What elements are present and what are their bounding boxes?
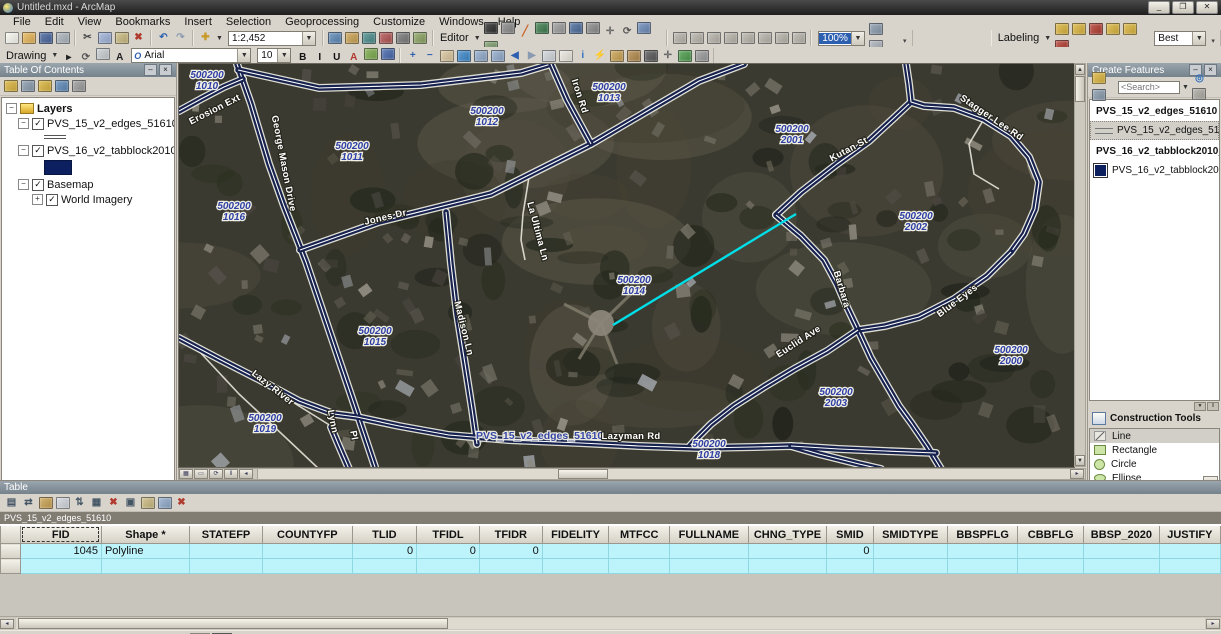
construction-tool-rectangle[interactable]: Rectangle [1090,443,1219,457]
refresh-view-button[interactable]: ⟳ [209,469,223,479]
search-dropdown-icon[interactable]: ▼ [1180,84,1191,91]
cell-1-fidelity[interactable] [542,559,609,574]
edit-annotation-icon[interactable] [500,20,517,35]
table-title: Table [4,482,28,493]
templates-filter-icon[interactable] [1090,71,1107,86]
paste-icon[interactable] [113,31,130,46]
cell-0-mtfcc[interactable] [609,544,670,559]
split-icon[interactable]: ✛ [602,24,619,39]
error-inspector-icon [758,32,772,44]
cell-1-justify[interactable] [1159,559,1220,574]
forward-extent-icon: ▶ [528,50,536,62]
cell-1-tfidr[interactable] [479,559,542,574]
collapse-icon[interactable]: − [6,103,17,114]
new-document-icon[interactable] [3,31,20,46]
find-icon [644,50,658,62]
label-weight-icon[interactable] [1087,22,1104,37]
column-header-fidelity[interactable]: FIDELITY [542,525,609,544]
column-header-smidtype[interactable]: SMIDTYPE [873,525,947,544]
templates-filter-icon [1092,72,1106,84]
delete-icon: ✖ [134,32,142,44]
edges-layer-map-label: PVS_15_v2_edges_51610 [476,430,603,442]
map-canvas[interactable]: PVS_15_v2_edges_51610Erosion ExtGeorge M… [178,63,1075,468]
cut-icon[interactable]: ✂ [79,31,96,46]
toc-tabblock-layer[interactable]: − ✓ PVS_16_v2_tabblock2010_51610 [6,143,174,158]
clear-search-icon [1192,88,1206,100]
vscroll-thumb[interactable] [1075,76,1085,102]
fixed-zoom-out-icon [491,50,505,62]
full-extent-icon [457,50,471,62]
block-label-1018: 1018 [698,450,721,461]
labeling-menu-caret[interactable]: ▼ [1042,35,1053,42]
map-horizontal-scrollbar[interactable] [257,469,1070,479]
clear-selection-icon [559,50,573,62]
attribute-grid[interactable]: FIDShape *STATEFPCOUNTYFPTLIDTFIDLTFIDRF… [0,524,1221,616]
create-features-panel: Create Features –× ▼ ◎ PVS_15_v2_edges_5… [1087,63,1221,480]
rectangle-tool-icon [1094,445,1106,455]
label-placement-dropdown-icon[interactable]: ▼ [1192,32,1205,45]
cell-1-smidtype[interactable] [873,559,947,574]
cell-0-smidtype[interactable] [873,544,947,559]
html-popup-icon[interactable] [608,48,625,63]
column-header-smid[interactable]: SMID [827,525,873,544]
label-priority-icon[interactable] [1070,22,1087,37]
add-data-caret[interactable]: ▼ [214,35,225,42]
street-label: Lazyman Rd [602,431,661,442]
column-header-mtfcc[interactable]: MTFCC [609,525,670,544]
print-icon[interactable] [54,31,71,46]
toc-options-icon [72,80,86,92]
rotate-tool-icon: ⟳ [623,26,631,38]
label-priority-icon [1072,23,1086,35]
related-tables-icon[interactable]: ⇄ [20,495,37,510]
table-options-icon[interactable]: ▤ [3,495,20,510]
column-header-statefp[interactable]: STATEFP [189,525,262,544]
column-header-shape-[interactable]: Shape * [101,525,189,544]
error-inspector-icon[interactable] [756,31,773,46]
fill-color-icon[interactable] [362,46,379,61]
scroll-up-icon[interactable]: ▲ [1075,64,1085,75]
scroll-down-icon[interactable]: ▼ [1075,455,1085,466]
zoom-box-icon [96,48,110,60]
back-extent-icon[interactable]: ◀ [506,48,523,63]
menu-item-selection[interactable]: Selection [219,16,278,28]
cell-0-justify[interactable] [1159,544,1220,559]
map-vertical-scrollbar[interactable]: ▲ ▼ [1074,63,1086,467]
straight-segment-icon[interactable]: ╱ [517,24,534,39]
paste-rows-icon [141,497,155,509]
rotate-element-icon: ⟳ [82,52,90,64]
clear-selection-icon[interactable] [557,48,574,63]
tabblock-layer-label: PVS_16_v2_tabblock2010_51610 [47,145,175,157]
minimize-button[interactable]: _ [1148,1,1170,14]
edit-vertices-icon[interactable] [568,20,585,35]
block-label-1013: 1013 [598,93,621,104]
block-label-1016: 1016 [223,212,246,223]
font-dropdown-icon[interactable]: ▼ [237,49,250,62]
column-header-countyfp[interactable]: COUNTYFP [263,525,353,544]
select-features-icon[interactable] [540,48,557,63]
polygon-template-icon [1094,164,1107,177]
menu-item-customize[interactable]: Customize [366,16,432,28]
cell-0-shape-[interactable]: Polyline [101,544,189,559]
column-header-tfidr[interactable]: TFIDR [479,525,542,544]
copy-icon[interactable] [96,31,113,46]
block-label-2003: 2003 [824,398,848,409]
toc-layers-node[interactable]: − Layers [6,101,174,116]
list-by-visibility-icon[interactable] [36,79,53,94]
basemap-checkbox[interactable]: ✓ [32,179,44,191]
zoom-percent-dropdown-icon[interactable]: ▼ [851,32,864,45]
editor-menu[interactable]: Editor [437,32,472,44]
table-layer-name: PVS_15_v2_edges_51610 [0,512,1221,524]
cell-1-bbspflg[interactable] [947,559,1017,574]
map-topology-icon [673,32,687,44]
add-data-icon[interactable]: ✚ [197,31,214,46]
menu-item-geoprocessing[interactable]: Geoprocessing [278,16,366,28]
select-elements-icon: ▸ [66,52,71,64]
zoom-to-selected-icon[interactable] [156,495,173,510]
organize-templates-icon[interactable] [1090,87,1107,102]
modify-edge-icon[interactable] [705,31,722,46]
cell-0-countyfp[interactable] [263,544,353,559]
go-to-xy-icon: ✛ [664,50,672,62]
fill-color-icon [364,48,378,60]
forward-extent-icon[interactable]: ▶ [523,48,540,63]
view-unplaced-icon [1106,23,1120,35]
cell-0-tfidr[interactable]: 0 [479,544,542,559]
toolbar-overflow-icon[interactable]: ▾ [901,31,909,45]
menu-item-edit[interactable]: Edit [38,16,71,28]
python-window-icon [396,32,410,44]
pan-icon [440,50,454,62]
list-by-visibility-icon [38,80,52,92]
column-header-chng-type[interactable]: CHNG_TYPE [748,525,827,544]
arcmap-app-icon [3,3,13,13]
table-scroll-right-icon[interactable]: ▸ [1206,619,1220,629]
table-hscroll-thumb[interactable] [18,618,448,629]
cell-1-mtfcc[interactable] [609,559,670,574]
lock-labels-icon [1123,23,1137,35]
tabblock-fill-symbol[interactable] [44,160,72,175]
column-header-fid[interactable]: FID [20,525,101,544]
cell-0-fid[interactable]: 1045 [20,544,101,559]
attributes-icon[interactable] [636,20,653,35]
viewer-window-icon[interactable] [868,22,885,37]
arctoolbox-icon [379,32,393,44]
font-combo[interactable]: O Arial ▼ [131,48,251,63]
block-label-1014: 1014 [623,286,646,297]
show-shared-features-icon[interactable] [722,31,739,46]
reshape-icon[interactable] [585,20,602,35]
copy-rows-icon[interactable]: ▣ [122,495,139,510]
close-button[interactable]: ✕ [1196,1,1218,14]
toc-caption: Table Of Contents –× [0,63,176,77]
map-scale-dropdown-icon[interactable]: ▼ [302,32,315,45]
feature-cache-icon [792,32,806,44]
aerial-map[interactable]: PVS_15_v2_edges_51610Erosion ExtGeorge M… [179,64,1074,467]
select-by-attributes-icon [39,497,53,509]
python-window-icon[interactable] [395,31,412,46]
cell-1-fid[interactable] [20,559,101,574]
labeling-toolbar: Labeling ▼ Best ▼ ▾ [991,30,1221,46]
menu-item-view[interactable]: View [71,16,109,28]
toc-pin-icon[interactable]: – [144,64,157,76]
collapse-icon[interactable]: − [18,118,29,129]
basemap-label: Basemap [47,179,93,191]
clear-search-icon[interactable] [1191,86,1208,101]
menu-item-bookmarks[interactable]: Bookmarks [108,16,177,28]
block-label-1015: 500200 [358,326,392,337]
cell-1-bbsp-2020[interactable] [1084,559,1160,574]
world-imagery-label: World Imagery [61,194,132,206]
font-size-dropdown-icon[interactable]: ▼ [277,49,290,62]
block-label-1015: 1015 [364,337,387,348]
delete-selected-icon[interactable]: ✖ [105,495,122,510]
zoom-box-icon[interactable] [94,46,111,61]
pan-icon[interactable] [438,48,455,63]
redo-icon[interactable]: ↷ [172,31,189,46]
switch-selection-icon: ⇅ [75,497,83,509]
edges-template-item[interactable]: PVS_15_v2_edges_51610 [1090,121,1219,140]
toc-tree: − Layers − ✓ PVS_15_v2_edges_51610 − ✓ P… [2,98,174,207]
drawing-menu-caret[interactable]: ▼ [49,52,60,59]
map-scale-combo[interactable]: 1:2,452 ▼ [228,31,316,46]
paste-rows-icon[interactable] [139,495,156,510]
topology-edit-icon[interactable] [688,31,705,46]
column-header-tlid[interactable]: TLID [352,525,417,544]
clear-table-selection-icon [56,497,70,509]
endpoint-arc-icon[interactable] [534,20,551,35]
splitter-grip-icon[interactable]: ‖ [1207,402,1219,411]
labeling-overflow-icon[interactable]: ▾ [1209,31,1217,45]
data-view-button[interactable]: ▦ [179,469,193,479]
catalog-window-icon [345,32,359,44]
drawing-menu[interactable]: Drawing [3,50,49,62]
cell-0-bbspflg[interactable] [947,544,1017,559]
save-icon [39,32,53,44]
underline-icon: U [333,52,340,64]
list-by-selection-icon[interactable] [53,79,70,94]
column-header-justify[interactable]: JUSTIFY [1159,525,1220,544]
cell-0-chng-type[interactable] [748,544,827,559]
cell-0-tfidl[interactable]: 0 [417,544,480,559]
collapse-icon[interactable]: − [18,145,29,156]
measure-icon [627,50,641,62]
feature-cache-icon[interactable] [790,31,807,46]
construction-tools-header: Construction Tools [1088,410,1221,427]
row-selector[interactable] [1,544,21,559]
validate-topology-icon[interactable] [739,31,756,46]
cell-1-fullname[interactable] [670,559,748,574]
column-header-cbbflg[interactable]: CBBFLG [1018,525,1084,544]
table-horizontal-scrollbar[interactable]: ◂ ▸ [0,616,1221,630]
create-viewer-icon[interactable] [693,48,710,63]
block-label-1010: 500200 [190,70,224,81]
pause-drawing-button[interactable]: ‖ [224,469,238,479]
scroll-right-icon[interactable]: ▸ [1070,469,1084,479]
table-of-contents-panel: Table Of Contents –× − Layers − ✓ PVS_15… [0,63,177,480]
toolbar-row-1: ✂✖ ↶↷ ✚ ▼ 1:2,452 ▼ Editor ▼ ╱✛⟳ 100% ▼ … [0,29,1221,48]
column-header-bbsp-2020[interactable]: BBSP_2020 [1084,525,1160,544]
rotate-tool-icon[interactable]: ⟳ [619,24,636,39]
identify-icon: i [581,50,584,62]
row-selector[interactable] [1,559,21,574]
block-label-2000: 2000 [999,356,1023,367]
delete-icon[interactable]: ✖ [130,31,147,46]
toc-close-icon[interactable]: × [159,64,172,76]
catalog-window-icon[interactable] [344,31,361,46]
block-label-1019: 1019 [254,424,277,435]
edit-vertices-icon [569,22,583,34]
redo-icon: ↷ [176,32,184,44]
font-color-icon: A [350,52,357,64]
label-placement-combo[interactable]: Best ▼ [1154,31,1206,46]
trace-icon[interactable] [551,20,568,35]
list-by-source-icon[interactable] [19,79,36,94]
cell-0-bbsp-2020[interactable] [1084,544,1160,559]
search-icon[interactable]: ◎ [1191,71,1208,86]
clear-table-selection-icon[interactable] [54,495,71,510]
edges-line-symbol[interactable] [44,135,66,139]
fixed-zoom-in-icon[interactable] [472,48,489,63]
map-scale-value: 1:2,452 [229,33,302,44]
open-folder-icon[interactable] [20,31,37,46]
layout-view-button[interactable]: ▭ [194,469,208,479]
measure-icon[interactable] [625,48,642,63]
find-icon[interactable] [642,48,659,63]
world-imagery-checkbox[interactable]: ✓ [46,194,58,206]
edges-layer-label: PVS_15_v2_edges_51610 [47,118,175,130]
collapse-icon[interactable]: − [18,179,29,190]
select-by-attributes-icon[interactable] [37,495,54,510]
record-navigation: |◀ ◀ ▶ ▶| ／ (1 out of 1043 Selected) [0,630,1221,634]
tabblock-template-group[interactable]: PVS_16_v2_tabblock2010_51... [1090,140,1219,161]
label-manager-icon[interactable] [1053,22,1070,37]
select-all-icon[interactable]: ▦ [88,495,105,510]
topology-edit-icon [690,32,704,44]
fixed-zoom-out-icon[interactable] [489,48,506,63]
search-window-icon[interactable] [361,31,378,46]
model-builder-icon[interactable] [412,31,429,46]
toc-world-imagery-layer[interactable]: + ✓ World Imagery [6,192,174,207]
edit-tool-icon[interactable] [483,20,500,35]
cell-0-tlid[interactable]: 0 [352,544,417,559]
column-header-bbspflg[interactable]: BBSPFLG [947,525,1017,544]
snapping-icon[interactable] [773,31,790,46]
switch-selection-icon[interactable]: ⇅ [71,495,88,510]
zoom-percent-value: 100% [819,33,851,44]
zoom-percent-combo[interactable]: 100% ▼ [818,31,865,46]
list-by-drawing-order-icon[interactable] [2,79,19,94]
go-to-xy-icon[interactable]: ✛ [659,48,676,63]
expand-icon[interactable]: + [32,194,43,205]
block-label-1013: 500200 [592,82,626,93]
table-of-contents-icon [328,32,342,44]
layers-label: Layers [37,103,72,115]
hscroll-thumb[interactable] [558,469,608,479]
reshape-icon [586,22,600,34]
labeling-menu[interactable]: Labeling [995,32,1043,44]
tabblock-layer-checkbox[interactable]: ✓ [32,145,44,157]
splitter-up-icon[interactable]: ▼ [1194,402,1206,411]
cell-0-smid[interactable]: 0 [827,544,873,559]
delete-rows-icon[interactable]: ✖ [173,495,190,510]
zoom-out-icon[interactable]: − [421,48,438,63]
html-popup-icon [610,50,624,62]
snapping-icon [775,32,789,44]
cell-0-statefp[interactable] [189,544,262,559]
cell-1-statefp[interactable] [189,559,262,574]
save-icon[interactable] [37,31,54,46]
block-label-1010: 1010 [196,81,219,92]
line-color-icon[interactable] [379,46,396,61]
column-header-tfidl[interactable]: TFIDL [417,525,480,544]
cell-1-countyfp[interactable] [263,559,353,574]
identify-icon[interactable]: i [574,48,591,63]
column-header-fullname[interactable]: FULLNAME [670,525,748,544]
arctoolbox-icon[interactable] [378,31,395,46]
block-label-1012: 1012 [476,117,499,128]
cell-0-cbbflg[interactable] [1018,544,1084,559]
template-search-input[interactable] [1118,81,1180,94]
title-bar: Untitled.mxd - ArcMap _ ❐ ✕ [0,0,1221,15]
toc-edges-layer[interactable]: − ✓ PVS_15_v2_edges_51610 [6,116,174,131]
list-by-selection-icon [55,80,69,92]
construction-tool-line[interactable]: Line [1090,429,1219,443]
block-label-2003: 500200 [819,387,853,398]
modify-edge-icon [707,32,721,44]
cell-1-tfidl[interactable] [417,559,480,574]
cell-1-smid[interactable] [827,559,873,574]
view-unplaced-icon[interactable] [1104,22,1121,37]
tabblock-template-item[interactable]: PVS_16_v2_tabblock2010_51610 [1090,161,1219,180]
menu-item-insert[interactable]: Insert [177,16,219,28]
cell-1-shape-[interactable] [101,559,189,574]
cell-1-chng-type[interactable] [748,559,827,574]
toc-basemap-layer[interactable]: − ✓ Basemap [6,177,174,192]
menu-item-file[interactable]: File [6,16,38,28]
table-of-contents-icon[interactable] [327,31,344,46]
cell-1-tlid[interactable] [352,559,417,574]
table-scroll-left-icon[interactable]: ◂ [0,619,14,629]
cell-1-cbbflg[interactable] [1018,559,1084,574]
toc-options-icon[interactable] [70,79,87,94]
text-tool-icon: A [116,52,123,64]
map-topology-icon[interactable] [671,31,688,46]
scroll-left-icon[interactable]: ◂ [239,469,253,479]
panel-splitter[interactable]: ▼‖ [1088,402,1221,410]
restore-button[interactable]: ❐ [1172,1,1194,14]
related-tables-icon: ⇄ [24,497,32,509]
time-slider-icon[interactable] [676,48,693,63]
cell-0-fidelity[interactable] [542,544,609,559]
construction-tool-circle[interactable]: Circle [1090,457,1219,471]
zoom-in-icon[interactable]: + [404,48,421,63]
drawing-toolbar: Drawing ▼ ▸⟳A O Arial ▼ 10 ▼ BIUA [0,48,400,64]
font-size-combo[interactable]: 10 ▼ [257,48,291,63]
validate-topology-icon [741,32,755,44]
undo-icon[interactable]: ↶ [155,31,172,46]
editor-menu-caret[interactable]: ▼ [472,35,483,42]
construction-tools-icon [1092,412,1106,425]
hyperlink-icon[interactable]: ⚡ [591,48,608,63]
lock-labels-icon[interactable] [1121,22,1138,37]
edges-layer-checkbox[interactable]: ✓ [32,118,44,130]
full-extent-icon[interactable] [455,48,472,63]
street-label: Pl [347,430,360,442]
cell-0-fullname[interactable] [670,544,748,559]
